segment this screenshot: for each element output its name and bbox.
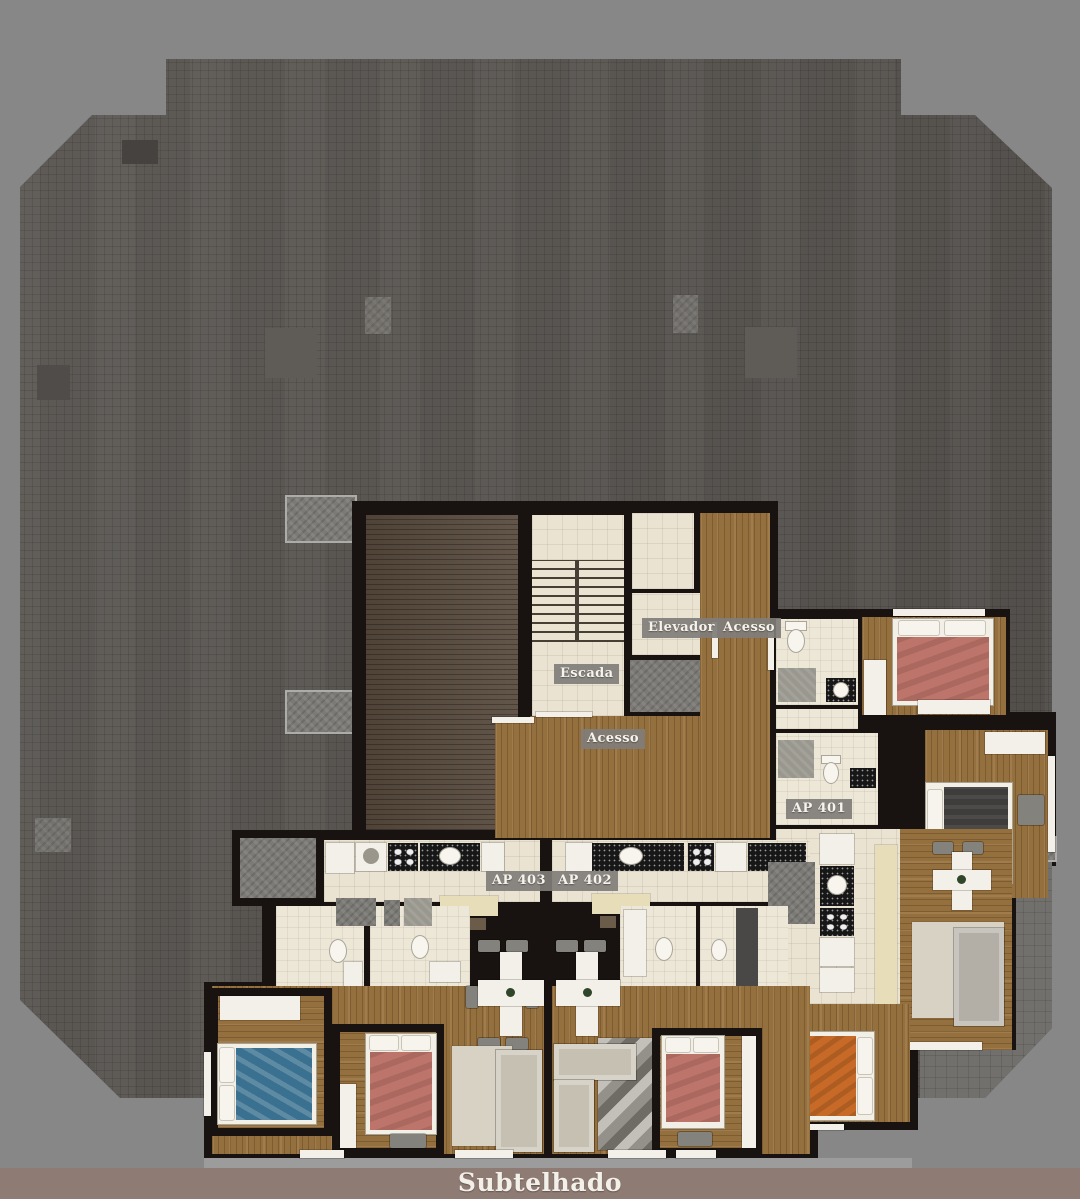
cooktop-burners [691,847,713,867]
dining-chair [478,940,500,952]
table-plant [506,988,515,997]
sink [834,683,848,697]
floor-title: Subtelhado [458,1168,622,1197]
toilet [656,938,672,960]
stair-stringer [575,560,579,642]
bed-pillow [945,621,985,635]
balcony-door-sill [676,1150,716,1158]
wardrobe [864,660,886,715]
oven [716,843,746,871]
toilet [824,763,838,783]
wardrobe [220,996,300,1020]
bed-pillow [899,621,939,635]
door-sill [536,712,592,717]
balcony-door-sill [608,1150,666,1158]
sofa [954,928,1004,1026]
label-acesso-upper: Acesso [717,618,781,638]
dining-chair [933,842,953,854]
door-sill [492,717,534,723]
table-plant [583,988,592,997]
vanity [430,962,460,982]
bar-stool [470,918,486,930]
armchair [1018,795,1044,825]
sofa-chaise [554,1044,636,1080]
bed-pillow [694,1038,718,1052]
roof-vent [745,327,797,378]
dining-chair [506,940,528,952]
ap401-hall [776,709,858,729]
label-escada: Escada [554,664,619,684]
balcony-door-sill [898,1042,982,1050]
ap403-service-terrace [240,838,316,898]
counter-end [566,843,592,871]
window-sill [204,1052,211,1116]
floor-title-bar: Subtelhado [0,1168,1080,1199]
access-corridor-jog [495,722,535,838]
shower [778,740,814,778]
counter-end [482,843,504,871]
floor-plan-render: Elevador Acesso Escada Acesso AP 401 AP … [0,0,1080,1199]
bed-pillow [666,1038,690,1052]
bed-pillow [370,1036,398,1050]
shower-column [736,908,758,990]
roof-vent [122,140,158,164]
kitchen-sink [828,876,846,894]
kitchen-sink [620,848,642,864]
label-elevador: Elevador [642,618,721,638]
balcony-door-sill [300,1150,344,1158]
kitchen-sink [440,848,460,864]
sofa [496,1050,542,1152]
bed-pillow [858,1038,872,1074]
dining-chair [466,986,478,1008]
roof-vent [35,818,71,852]
roof-hatch [287,692,353,732]
wardrobe [742,1036,756,1148]
table-plant [957,875,966,884]
sofa [554,1080,594,1152]
shower [336,898,376,926]
roof-skylight [673,295,698,333]
shower [384,900,400,926]
fridge [820,834,854,864]
core-service-pit [630,660,700,712]
label-ap402: AP 402 [552,871,618,891]
toilet-tank [822,756,840,763]
window-sill [893,609,985,616]
dresser [918,700,990,714]
shower [404,898,432,926]
bed-pillow [220,1048,234,1082]
roof-hatch [287,497,355,541]
bench [678,1132,712,1146]
access-corridor-right [700,513,770,838]
toilet [330,940,346,962]
roof-skylight [365,297,391,334]
toilet [788,630,804,652]
balcony-door-sill [455,1150,513,1158]
bed-pillow [402,1036,430,1050]
bed-pillow [858,1078,872,1114]
roof-vent [265,328,317,378]
fridge [326,843,354,873]
label-ap403: AP 403 [486,871,552,891]
label-ap401: AP 401 [786,799,852,819]
toilet [712,940,726,960]
oven [820,938,854,966]
label-acesso-lower: Acesso [581,729,645,749]
shelf [985,732,1045,754]
kitchen-island [875,845,897,1030]
bar-stool [600,916,616,928]
bed-blanket [897,637,989,701]
washer-door [363,848,379,864]
kitchen-cart [820,968,854,992]
dresser [340,1084,356,1148]
bench [390,1134,426,1148]
toilet [412,936,428,958]
shower [778,668,816,702]
bed-blanket [666,1054,720,1122]
toilet-tank [786,622,806,630]
bed-pillow [220,1086,234,1120]
bed-blanket [370,1052,432,1130]
cooktop-burners [824,912,850,932]
cabinet [624,910,646,976]
cooktop-burners [392,847,416,867]
dining-chair [584,940,606,952]
vanity-counter [850,768,876,788]
elevator-shaft [632,513,694,589]
dining-chair [556,940,578,952]
bed-pillow [928,790,942,830]
bed-blanket [236,1048,312,1120]
roof-vent [37,365,70,400]
window-sill [1048,756,1055,852]
stair-upper-landing [532,515,624,560]
